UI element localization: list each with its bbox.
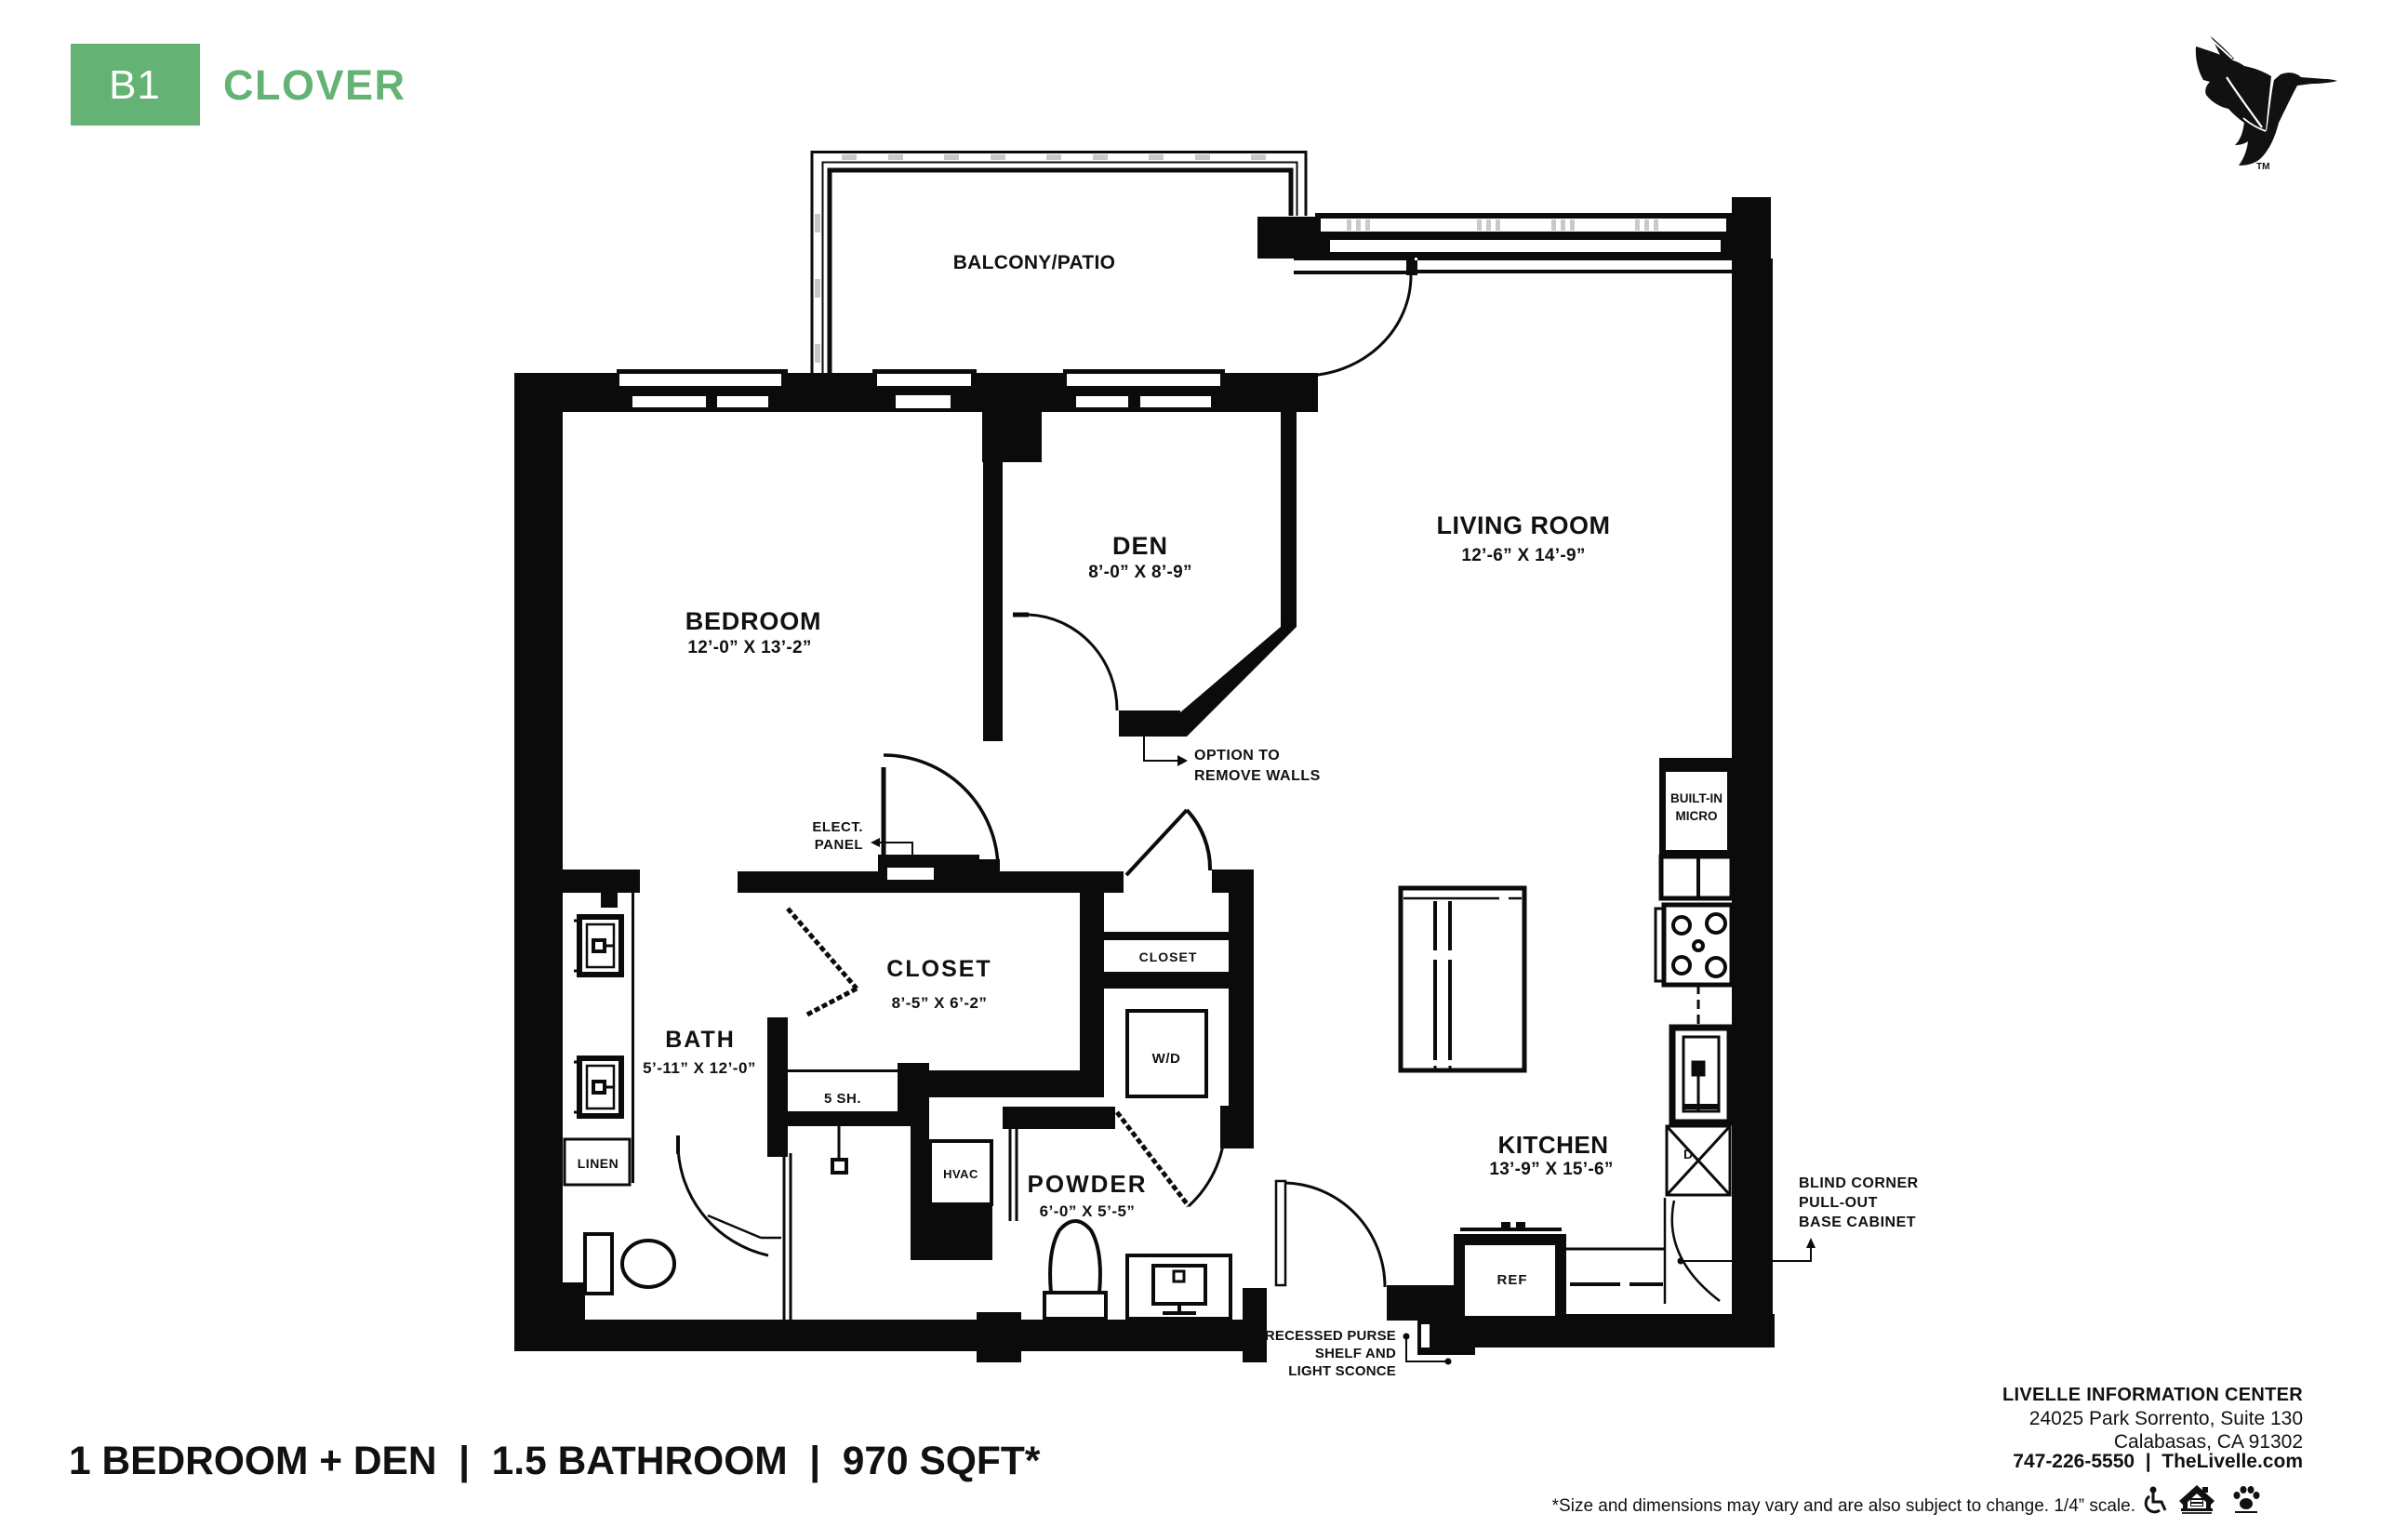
svg-text:REMOVE WALLS: REMOVE WALLS [1194, 768, 1321, 784]
svg-text:ELECT.: ELECT. [812, 819, 863, 835]
svg-text:8’-5” X 6’-2”: 8’-5” X 6’-2” [892, 994, 988, 1012]
svg-text:CLOVER: CLOVER [223, 61, 406, 109]
svg-text:LINEN: LINEN [578, 1156, 619, 1171]
svg-text:LIVING ROOM: LIVING ROOM [1437, 511, 1611, 539]
svg-text:BATH: BATH [665, 1027, 736, 1053]
svg-text:D: D [1683, 1147, 1693, 1162]
svg-text:REF: REF [1497, 1272, 1528, 1288]
svg-text:B1: B1 [109, 62, 161, 108]
svg-text:12’-0” X 13’-2”: 12’-0” X 13’-2” [687, 638, 811, 657]
svg-text:W/D: W/D [1152, 1051, 1181, 1067]
svg-text:BEDROOM: BEDROOM [685, 607, 822, 635]
svg-text:24025 Park Sorrento, Suite 130: 24025 Park Sorrento, Suite 130 [2029, 1408, 2303, 1429]
svg-text:BLIND CORNER: BLIND CORNER [1799, 1175, 1919, 1191]
svg-text:Calabasas, CA 91302: Calabasas, CA 91302 [2114, 1431, 2303, 1453]
svg-text:RECESSED PURSE: RECESSED PURSE [1265, 1328, 1396, 1344]
svg-text:LIVELLE INFORMATION CENTER: LIVELLE INFORMATION CENTER [2002, 1385, 2303, 1405]
svg-text:BUILT-IN: BUILT-IN [1670, 791, 1723, 805]
svg-text:HVAC: HVAC [943, 1167, 978, 1181]
svg-text:MICRO: MICRO [1676, 809, 1718, 823]
svg-text:POWDER: POWDER [1028, 1170, 1148, 1198]
svg-text:8’-0” X 8’-9”: 8’-0” X 8’-9” [1088, 563, 1192, 582]
svg-text:TM: TM [2256, 162, 2269, 172]
svg-text:LIGHT SCONCE: LIGHT SCONCE [1288, 1363, 1396, 1379]
svg-text:OPTION TO: OPTION TO [1194, 748, 1280, 763]
svg-text:5 SH.: 5 SH. [824, 1091, 861, 1107]
svg-text:BALCONY/PATIO: BALCONY/PATIO [953, 252, 1116, 273]
svg-text:CLOSET: CLOSET [886, 956, 991, 982]
svg-text:6’-0” X 5’-5”: 6’-0” X 5’-5” [1040, 1202, 1136, 1220]
svg-text:BASE CABINET: BASE CABINET [1799, 1215, 1916, 1230]
svg-text:KITCHEN: KITCHEN [1497, 1131, 1608, 1159]
svg-text:747-226-5550 | TheLivelle.co: 747-226-5550 | TheLivelle.com [2013, 1451, 2303, 1472]
svg-text:*Size and dimensions may vary: *Size and dimensions may vary and are al… [1552, 1496, 2135, 1516]
svg-text:SHELF AND: SHELF AND [1315, 1346, 1396, 1361]
svg-text:12’-6” X 14’-9”: 12’-6” X 14’-9” [1461, 546, 1585, 565]
svg-text:CLOSET: CLOSET [1139, 949, 1198, 964]
svg-text:PULL-OUT: PULL-OUT [1799, 1195, 1878, 1211]
svg-text:PANEL: PANEL [815, 837, 863, 853]
svg-text:5’-11” X 12’-0”: 5’-11” X 12’-0” [643, 1059, 756, 1077]
svg-text:13’-9” X 15’-6”: 13’-9” X 15’-6” [1489, 1160, 1613, 1179]
svg-text:DEN: DEN [1112, 532, 1168, 560]
svg-text:1 BEDROOM + DEN | 1.5 BATHRO: 1 BEDROOM + DEN | 1.5 BATHROOM | 970 SQF… [69, 1440, 1041, 1483]
